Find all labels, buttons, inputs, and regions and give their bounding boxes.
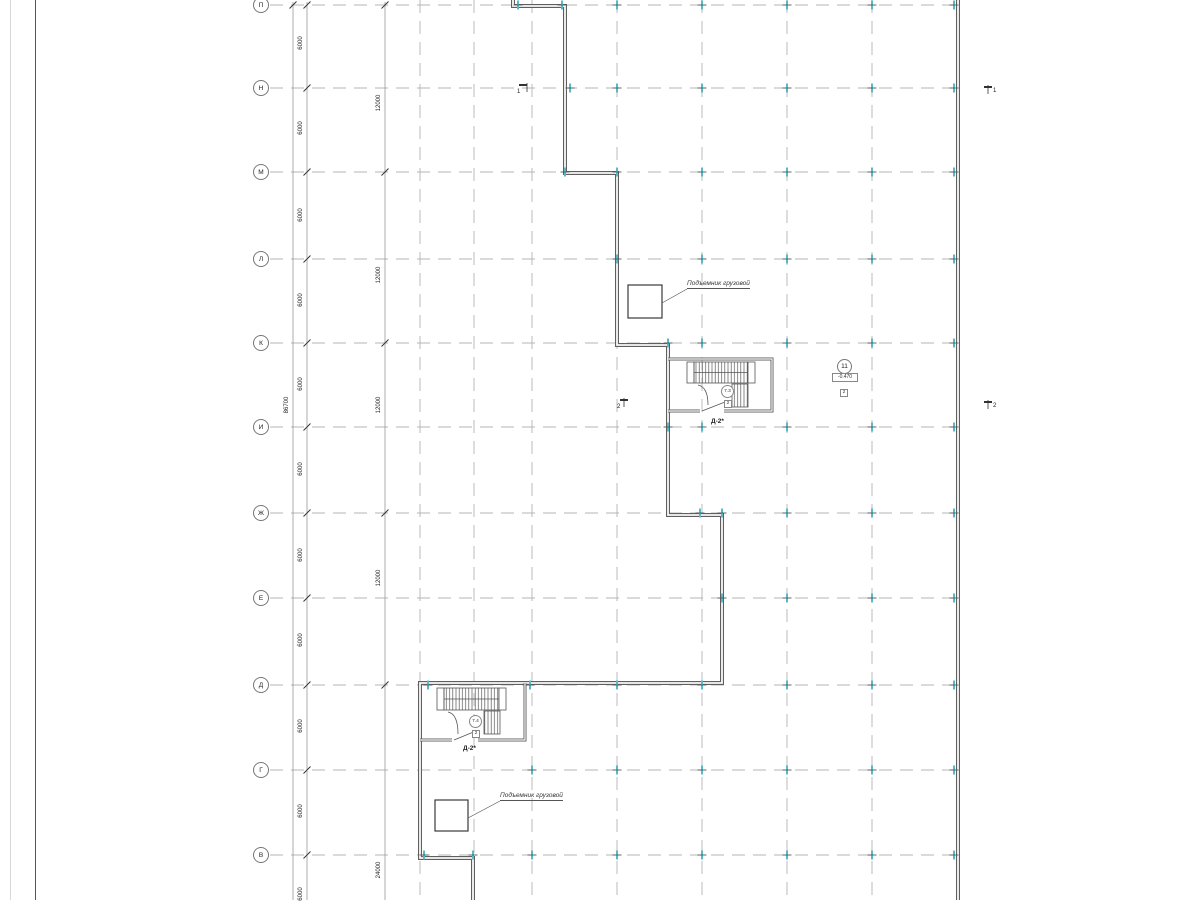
row-axis-K: К <box>253 335 269 351</box>
section-number: 2 <box>993 403 996 409</box>
column-grid-lines <box>420 0 872 900</box>
dim-6000: 6000 <box>295 714 307 738</box>
row-axis-G: Г <box>253 762 269 778</box>
dim-overall-86700: 86700 <box>281 393 293 417</box>
dim-12000: 12000 <box>373 263 385 287</box>
wall-outline <box>420 0 958 900</box>
section-number: 1 <box>517 89 520 95</box>
dim-6000: 6000 <box>295 31 307 55</box>
axis-bubble-11: 11 <box>837 359 852 374</box>
dim-6000: 6000 <box>295 543 307 567</box>
freight-lift-lower <box>435 800 500 831</box>
dim-6000: 6000 <box>295 116 307 140</box>
lift-label-lower: Подъемник грузовой <box>500 792 563 801</box>
row-axis-I: И <box>253 419 269 435</box>
dim-24000: 24000 <box>373 858 385 882</box>
row-axis-M: М <box>253 164 269 180</box>
room-bubble-7-4: 7.4 <box>469 715 482 728</box>
row-grid-lines <box>270 5 957 855</box>
room-bubble-7-3: 7.3 <box>721 385 734 398</box>
dim-12000: 12000 <box>373 91 385 115</box>
row-axis-D: Д <box>253 677 269 693</box>
room-sub-box: 2 <box>472 730 480 738</box>
row-axis-E: Е <box>253 590 269 606</box>
dim-6000: 6000 <box>295 288 307 312</box>
row-axis-L: Л <box>253 251 269 267</box>
room-sub-box: 2 <box>724 400 732 408</box>
dim-12000: 12000 <box>373 393 385 417</box>
row-axis-V: В <box>253 847 269 863</box>
floor-plan-sheet: { "colors": { "wall": "#5f5f5f", "grid_l… <box>0 0 1200 900</box>
row-axis-Zh: Ж <box>253 505 269 521</box>
section-number: 1 <box>993 88 996 94</box>
dim-6000: 6000 <box>295 372 307 396</box>
drawing-canvas[interactable]: П Н М Л К И Ж Е Д Г В 6000 6000 6000 600… <box>0 0 1200 900</box>
door-leaf <box>702 402 725 411</box>
elevation-mark: -0.470 <box>832 373 858 382</box>
door-label-upper: Д-2* <box>711 418 724 425</box>
door-swing-arc <box>448 712 458 734</box>
door-swing-arc <box>698 385 708 405</box>
door-label-lower: Д-2* <box>463 745 476 752</box>
dim-6000: 6000 <box>295 628 307 652</box>
plan-drawing <box>0 0 1200 900</box>
section-number: 2 <box>617 404 620 410</box>
dim-6000: 6000 <box>295 457 307 481</box>
row-axis-N: Н <box>253 80 269 96</box>
dim-6000: 6000 <box>295 799 307 823</box>
freight-lift-upper <box>628 285 687 318</box>
sheet-frame <box>11 0 36 900</box>
dim-6000: 6000 <box>295 203 307 227</box>
elevation-sub-box: 2 <box>840 389 848 397</box>
dim-6000: 6000 <box>295 882 307 906</box>
lift-label-upper: Подъемник грузовой <box>687 280 750 289</box>
stairwell-upper <box>668 359 772 411</box>
dim-12000: 12000 <box>373 566 385 590</box>
